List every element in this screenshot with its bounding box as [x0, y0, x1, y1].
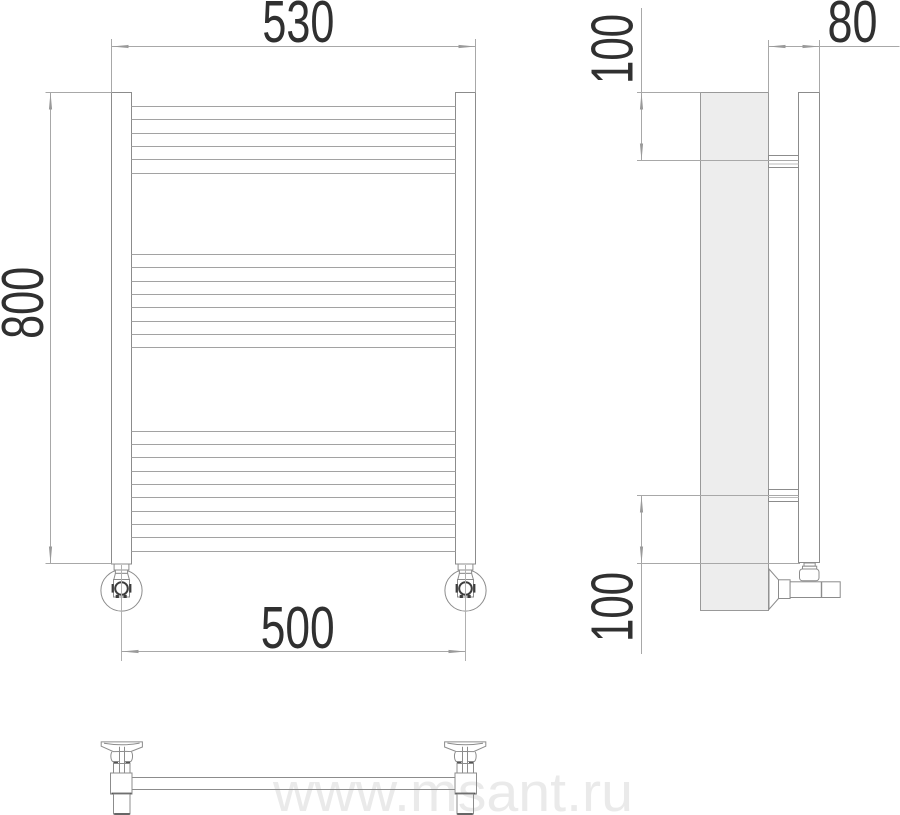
svg-text:500: 500: [261, 595, 335, 661]
svg-text:100: 100: [580, 572, 646, 642]
svg-text:530: 530: [262, 0, 334, 55]
svg-text:800: 800: [0, 267, 56, 339]
svg-text:80: 80: [828, 0, 878, 55]
svg-text:www.msant.ru: www.msant.ru: [272, 761, 633, 815]
svg-text:100: 100: [580, 14, 646, 84]
